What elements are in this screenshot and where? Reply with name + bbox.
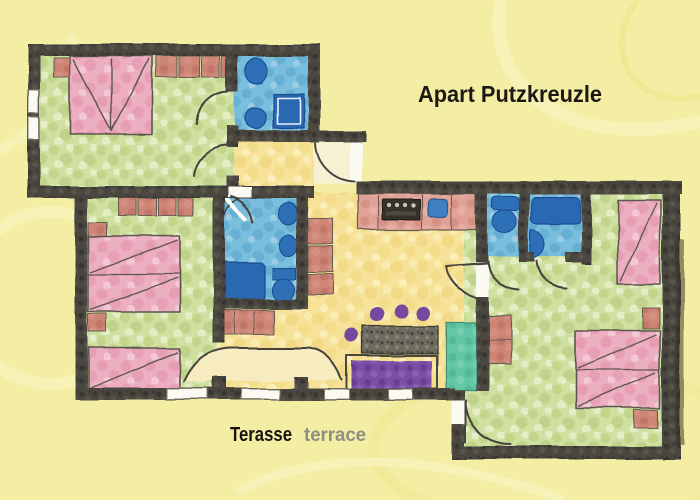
- wall: [519, 194, 529, 254]
- wall: [452, 446, 680, 459]
- wall: [213, 192, 225, 343]
- wall: [226, 56, 238, 92]
- shower-icon: [274, 94, 304, 128]
- wc-right-fixtures: [492, 197, 519, 233]
- nightstand: [642, 308, 659, 328]
- window: [388, 389, 412, 399]
- floorplan-svg: Apart Putzkreuzle Terasse terrace: [0, 0, 700, 500]
- toilet-icon: [279, 202, 297, 224]
- door-gap: [452, 400, 465, 424]
- sink-icon: [245, 108, 267, 128]
- double-bed-top-left: [70, 56, 152, 134]
- door-post: [212, 377, 226, 388]
- single-bed-bottom-left: [88, 348, 180, 390]
- dining-table: [362, 326, 438, 354]
- wall: [226, 176, 238, 186]
- hall-wardrobe: [308, 218, 333, 295]
- bathtub-icon: [531, 197, 580, 224]
- bench: [446, 323, 476, 390]
- double-bed-bottom-left: [88, 236, 180, 312]
- door-gap: [476, 262, 489, 296]
- terrace-label-en: terrace: [304, 425, 366, 446]
- armchair: [486, 316, 511, 364]
- toilet-icon: [245, 58, 267, 84]
- wardrobe-right: [618, 200, 660, 284]
- double-bed-right: [576, 330, 660, 408]
- nightstand: [634, 410, 658, 428]
- wall: [75, 186, 87, 400]
- entry-door-gap: [350, 141, 362, 181]
- door-post: [294, 377, 308, 388]
- wall: [308, 44, 320, 142]
- toilet-tank-icon: [272, 268, 295, 279]
- wall: [565, 252, 591, 262]
- sofa: [347, 356, 437, 393]
- stove-icon: [382, 200, 420, 220]
- wall-smudge: [676, 240, 684, 445]
- floorplan-image: Apart Putzkreuzle Terasse terrace: [0, 0, 700, 500]
- wall: [356, 181, 682, 194]
- wall: [226, 130, 320, 142]
- wall: [476, 296, 489, 390]
- wall: [519, 252, 535, 262]
- wall: [314, 130, 366, 141]
- window: [167, 389, 207, 399]
- wall: [476, 194, 488, 262]
- wall: [28, 44, 320, 56]
- page-title: Apart Putzkreuzle: [418, 81, 602, 107]
- bidet-icon: [279, 234, 297, 256]
- wall: [28, 186, 314, 198]
- wall: [296, 192, 308, 309]
- wall: [213, 299, 308, 309]
- window: [241, 389, 279, 399]
- window: [324, 389, 350, 399]
- window: [29, 90, 39, 112]
- window: [29, 116, 39, 138]
- kitchen-sink-icon: [428, 199, 448, 217]
- terrace-label-de: Terasse: [230, 424, 292, 446]
- toilet-icon: [493, 211, 517, 233]
- toilet-icon: [272, 278, 294, 302]
